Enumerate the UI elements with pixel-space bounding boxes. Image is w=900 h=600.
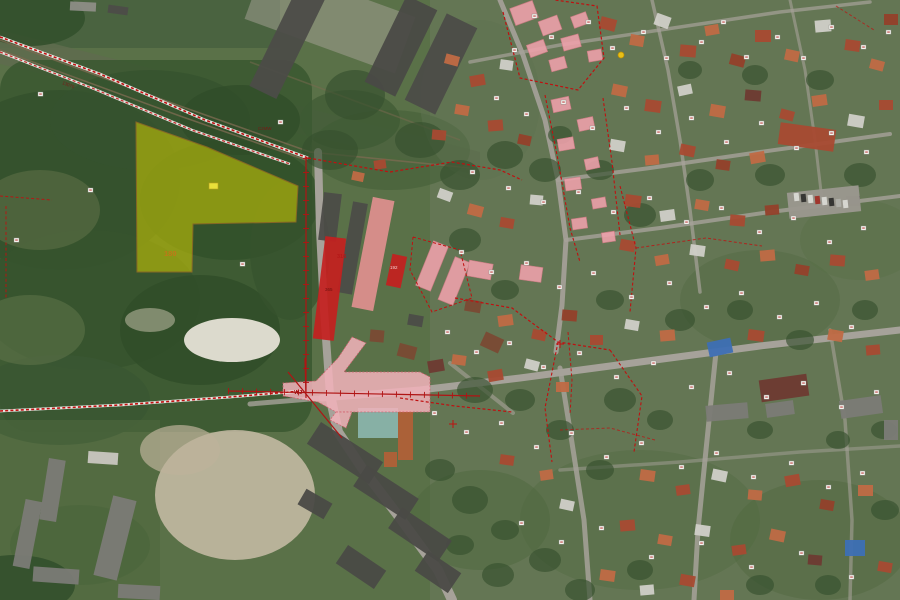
tree-canopy: [440, 160, 480, 190]
building: [845, 540, 865, 556]
parcel-label-glyph: [802, 383, 805, 384]
tree-canopy: [491, 520, 519, 540]
building: [808, 554, 823, 565]
building: [866, 344, 881, 355]
parcel-label-glyph: [745, 57, 748, 58]
parcel-label-glyph: [700, 42, 703, 43]
tree-canopy: [871, 500, 899, 520]
parcel-label-glyph: [758, 232, 761, 233]
building: [864, 269, 879, 281]
tree-canopy: [586, 460, 614, 480]
building: [858, 485, 873, 496]
map-canvas[interactable]: 13070CzMW180316365192W2: [0, 0, 900, 600]
building: [811, 94, 827, 107]
parcel-label-glyph: [875, 392, 878, 393]
map-label: W2: [294, 390, 302, 396]
tree-canopy: [747, 421, 773, 439]
building: [745, 89, 762, 101]
tree-canopy: [746, 575, 774, 595]
parcel-label-glyph: [471, 172, 474, 173]
parcel-label-glyph: [862, 47, 865, 48]
parcel-label-glyph: [525, 263, 528, 264]
parcel-label-glyph: [500, 423, 503, 424]
tree-canopy: [755, 164, 785, 186]
parcel-label-glyph: [802, 58, 805, 59]
parcel-label-glyph: [752, 477, 755, 478]
building: [747, 329, 764, 342]
tree-canopy: [742, 65, 768, 85]
parcel-label-glyph: [795, 148, 798, 149]
terrain-patch: [184, 318, 280, 362]
parcel-label-glyph: [475, 352, 478, 353]
parcel-label-glyph: [507, 188, 510, 189]
parcel-label-glyph: [495, 98, 498, 99]
map-label: 192: [390, 265, 398, 270]
parcel-label-glyph: [815, 303, 818, 304]
building: [808, 195, 814, 203]
tree-canopy: [806, 70, 834, 90]
parcel-label-glyph: [778, 317, 781, 318]
tree-canopy: [844, 163, 876, 187]
building: [844, 39, 860, 52]
parcel-label-glyph: [657, 132, 660, 133]
tree-canopy: [815, 575, 841, 595]
map-label: CzMW: [258, 126, 272, 131]
parcel-label-glyph: [650, 557, 653, 558]
parcel-label-glyph: [542, 367, 545, 368]
building: [599, 569, 615, 582]
parcel-label-glyph: [591, 128, 594, 129]
parcel-label-glyph: [790, 463, 793, 464]
parcel-label-glyph: [279, 122, 282, 123]
parcel-label-glyph: [830, 27, 833, 28]
overlay-pink-building: [571, 217, 587, 230]
building: [884, 420, 898, 440]
building: [715, 159, 730, 171]
parcel-label-glyph: [668, 283, 671, 284]
parcel-label-glyph: [850, 577, 853, 578]
building: [675, 484, 690, 496]
parcel-label-glyph: [611, 48, 614, 49]
building: [118, 584, 161, 600]
tree-canopy: [786, 330, 814, 350]
overlay-pink-building: [557, 137, 575, 152]
parcel-label-glyph: [490, 272, 493, 273]
parcel-label-glyph: [542, 202, 545, 203]
parcel-label-glyph: [680, 467, 683, 468]
parcel-label-glyph: [535, 447, 538, 448]
building: [370, 329, 385, 342]
parcel-label-glyph: [850, 327, 853, 328]
parcel-label-glyph: [39, 94, 42, 95]
building: [624, 194, 642, 208]
building: [645, 154, 660, 165]
yellow-tag-marker: [209, 183, 218, 189]
building: [794, 193, 800, 201]
tree-canopy: [565, 579, 595, 600]
tree-canopy: [678, 61, 702, 79]
overlay-pink-building: [587, 49, 603, 62]
overlay-pink-building: [591, 197, 607, 209]
parcel-label-glyph: [887, 32, 890, 33]
parcel-label-glyph: [520, 523, 523, 524]
parcel-label-glyph: [508, 343, 511, 344]
parcel-label-glyph: [558, 287, 561, 288]
tree-canopy: [852, 300, 878, 320]
tree-canopy: [529, 158, 561, 182]
tree-canopy: [491, 280, 519, 300]
parcel-label-glyph: [460, 252, 463, 253]
parcel-label-glyph: [776, 37, 779, 38]
building: [590, 335, 603, 345]
parcel-label-glyph: [828, 242, 831, 243]
parcel-label-glyph: [648, 198, 651, 199]
tree-canopy: [647, 410, 673, 430]
parcel-label-glyph: [690, 118, 693, 119]
parcel-label-glyph: [665, 58, 668, 59]
overlay-pink-building: [519, 265, 543, 283]
parcel-label-glyph: [720, 208, 723, 209]
parcel-label-glyph: [800, 553, 803, 554]
parcel-label-glyph: [560, 542, 563, 543]
building: [620, 519, 636, 531]
building: [815, 196, 821, 204]
parcel-label-glyph: [592, 273, 595, 274]
tree-canopy: [482, 563, 514, 587]
parcel-label-glyph: [625, 108, 628, 109]
building: [694, 524, 710, 537]
tree-canopy: [665, 309, 695, 331]
terrain-patch: [125, 308, 175, 332]
parcel-label-glyph: [862, 228, 865, 229]
parcel-label-glyph: [525, 114, 528, 115]
building: [830, 254, 846, 266]
building: [731, 544, 746, 556]
parcel-label-glyph: [840, 407, 843, 408]
building: [639, 469, 655, 482]
building: [660, 329, 676, 341]
parcel-label-glyph: [433, 413, 436, 414]
parcel-label-glyph: [587, 22, 590, 23]
building: [539, 469, 553, 481]
parcel-label-glyph: [728, 373, 731, 374]
parcel-label-glyph: [725, 142, 728, 143]
parcel-label-glyph: [513, 50, 516, 51]
parcel-label-glyph: [630, 297, 633, 298]
parcel-label-glyph: [15, 240, 18, 241]
building: [556, 382, 569, 392]
parcel-label-glyph: [722, 22, 725, 23]
tree-canopy: [604, 388, 636, 412]
parcel-label-glyph: [615, 377, 618, 378]
building: [432, 129, 447, 140]
parcel-label-glyph: [685, 222, 688, 223]
parcel-label-glyph: [640, 443, 643, 444]
yellow-point-marker: [618, 52, 624, 58]
tree-canopy: [302, 130, 358, 170]
parcel-label-glyph: [533, 16, 536, 17]
tree-canopy: [505, 389, 535, 411]
building: [88, 451, 119, 465]
tree-canopy: [452, 486, 488, 514]
tree-canopy: [425, 459, 455, 481]
building: [640, 584, 655, 595]
building: [33, 566, 80, 584]
map-label: 365: [325, 287, 333, 292]
parcel-label-glyph: [705, 307, 708, 308]
parcel-label-glyph: [792, 218, 795, 219]
tree-canopy: [686, 169, 714, 191]
parcel-label-glyph: [830, 133, 833, 134]
building: [765, 204, 780, 215]
parcel-label-glyph: [578, 353, 581, 354]
parcel-label-glyph: [446, 332, 449, 333]
building: [843, 200, 849, 208]
building: [879, 100, 893, 110]
parcel-label-glyph: [89, 190, 92, 191]
building: [689, 244, 705, 257]
tree-canopy: [457, 377, 493, 403]
building: [760, 249, 776, 261]
map-viewport: 13070CzMW180316365192W2: [0, 0, 900, 600]
building: [801, 194, 807, 202]
parcel-label-glyph: [700, 543, 703, 544]
parcel-label-glyph: [740, 293, 743, 294]
building: [836, 199, 842, 207]
building: [659, 209, 675, 222]
building: [358, 408, 398, 438]
building: [680, 44, 697, 57]
parcel-label-glyph: [562, 102, 565, 103]
parcel-label-glyph: [861, 473, 864, 474]
tree-canopy: [727, 300, 753, 320]
building: [562, 309, 578, 321]
parcel-label-glyph: [600, 528, 603, 529]
overlay-pink-building: [564, 177, 582, 191]
tree-canopy: [446, 535, 474, 555]
parcel-label-glyph: [760, 123, 763, 124]
parcel-label-glyph: [642, 32, 645, 33]
building: [720, 590, 734, 600]
building: [384, 452, 397, 467]
tree-canopy: [826, 431, 850, 449]
building: [451, 354, 466, 366]
parcel-label-glyph: [550, 37, 553, 38]
overlay-pink-building: [601, 231, 615, 243]
building: [644, 99, 662, 113]
building: [829, 198, 835, 206]
parcel-label-glyph: [612, 212, 615, 213]
building: [497, 314, 513, 327]
parcel-label-glyph: [652, 363, 655, 364]
tree-canopy: [627, 560, 653, 580]
map-label: 180: [164, 249, 177, 258]
building: [70, 1, 96, 11]
building: [488, 119, 504, 131]
building: [730, 214, 746, 226]
tree-canopy: [487, 141, 523, 169]
building: [373, 159, 386, 170]
parcel-label-glyph: [465, 432, 468, 433]
building: [822, 197, 828, 205]
building: [709, 104, 726, 118]
tree-canopy: [596, 290, 624, 310]
building: [748, 489, 763, 500]
terrain-patch: [140, 425, 220, 475]
building: [755, 30, 771, 42]
parcel-label-glyph: [690, 387, 693, 388]
parcel-label-glyph: [765, 397, 768, 398]
parcel-label-glyph: [570, 433, 573, 434]
parcel-label-glyph: [715, 453, 718, 454]
building: [499, 454, 514, 466]
tree-canopy: [395, 122, 445, 158]
parcel-label-glyph: [750, 567, 753, 568]
parcel-label-glyph: [241, 264, 244, 265]
building: [499, 59, 513, 71]
parcel-label-glyph: [865, 152, 868, 153]
building: [398, 410, 413, 460]
tree-canopy: [529, 548, 561, 572]
parcel-label-glyph: [577, 192, 580, 193]
parcel-label-glyph: [827, 487, 830, 488]
map-label: 316: [337, 254, 346, 260]
parcel-label-glyph: [605, 457, 608, 458]
building: [884, 14, 898, 25]
